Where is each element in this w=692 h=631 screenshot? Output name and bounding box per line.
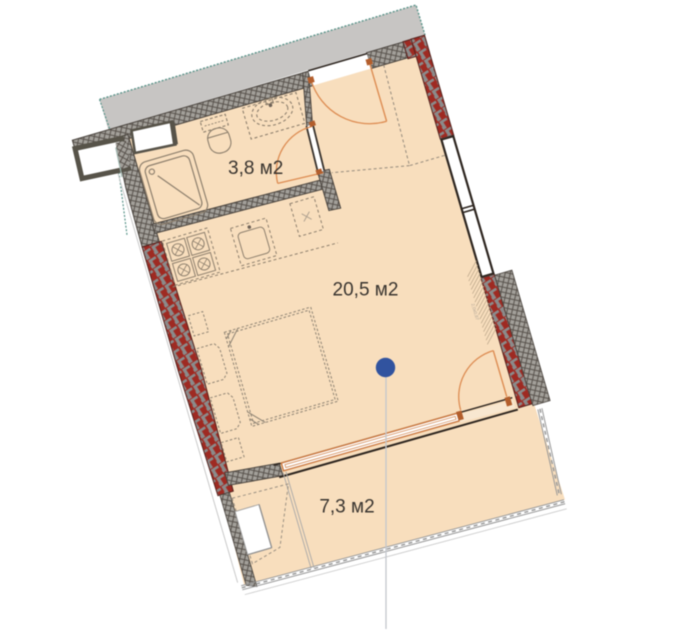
svg-text:7,3 м2: 7,3 м2 [319, 497, 374, 518]
svg-text:20,5 м2: 20,5 м2 [333, 279, 399, 300]
svg-text:3,8 м2: 3,8 м2 [228, 158, 283, 179]
